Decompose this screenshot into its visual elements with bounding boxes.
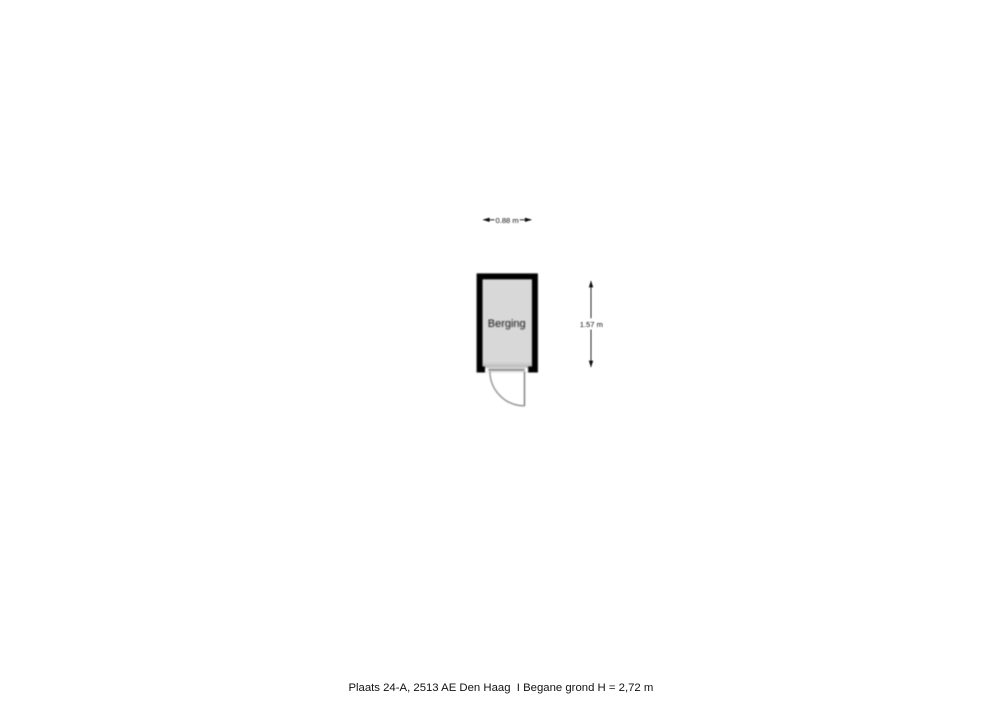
svg-text:Plaats 24-A, 2513 AE Den Haag: Plaats 24-A, 2513 AE Den Haag I Begane g… <box>348 682 653 694</box>
svg-text:Berging: Berging <box>488 318 526 330</box>
svg-text:0.88 m: 0.88 m <box>495 216 518 225</box>
svg-text:1.57 m: 1.57 m <box>580 320 603 329</box>
